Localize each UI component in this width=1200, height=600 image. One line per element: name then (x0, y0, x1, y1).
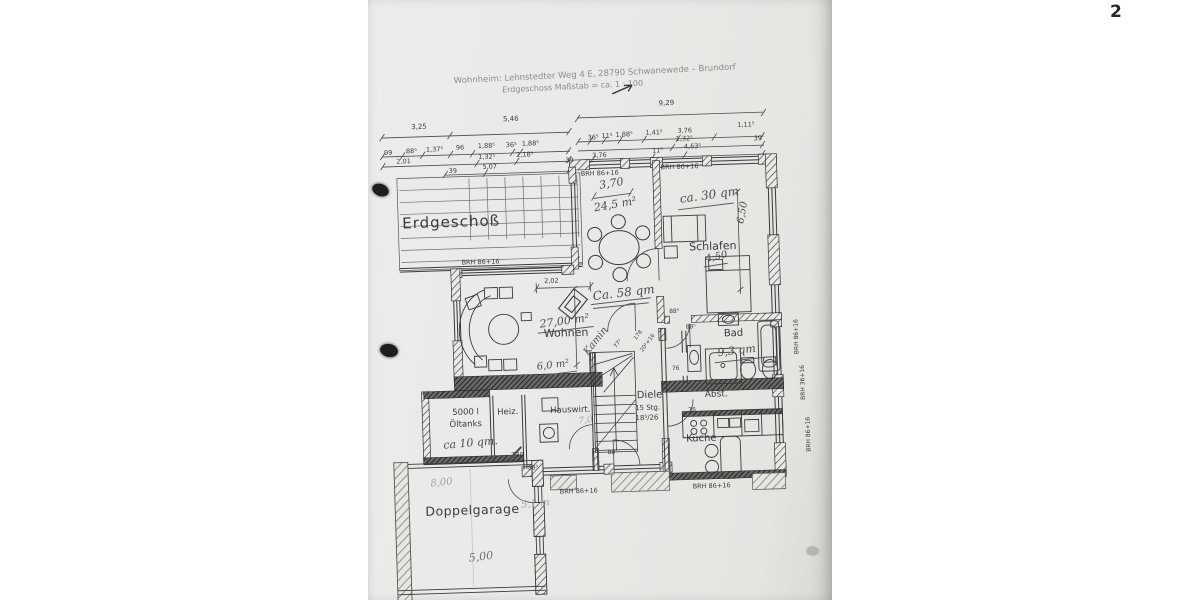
room-label-hauswirt: Hauswirt. (550, 406, 591, 416)
hand-hall-width: 7,0 (578, 416, 593, 427)
room-label-abst: Abst. (705, 390, 728, 400)
dim: 5,46 (503, 116, 519, 123)
dim: 11⁵ (602, 133, 613, 140)
sill-label: BRH 86+16 (560, 487, 598, 495)
utility-fixtures (539, 398, 559, 443)
sill-label: BRH 86+16 (793, 319, 800, 354)
dim: 76 (672, 366, 680, 372)
room-label-kueche: Küche (686, 434, 717, 445)
hand-garage-length: 5,00 (468, 550, 494, 564)
dim: 1,32⁵ (676, 135, 693, 142)
door-label-t30: T30 (511, 452, 523, 459)
sill-label: BRH 86+16 (693, 482, 731, 490)
sill-label: BRH 86+16 (806, 417, 813, 452)
dim: 4,63⁵ (684, 143, 701, 150)
dim: 99 (384, 150, 392, 157)
room-label-oeltank-2: Öltanks (449, 420, 482, 430)
photo-of-floor-plan: 2 Wohnheim: Lehnstedter Weg 4 E, 28790 S… (0, 0, 1200, 600)
room-label-garage: Doppelgarage (425, 503, 520, 518)
dim: 96 (456, 144, 464, 151)
dim: 88⁵ (406, 148, 417, 155)
scanned-floor-plan-sheet: Wohnheim: Lehnstedter Weg 4 E, 28790 Sch… (368, 0, 832, 600)
dim: 88⁵ (528, 465, 538, 471)
dim: 36⁵ (588, 134, 599, 141)
dim: 1,11⁵ (737, 121, 754, 128)
room-label-heiz: Heiz. (497, 408, 518, 417)
dining-table-and-chairs (587, 214, 651, 283)
page-number: 2 (1110, 2, 1122, 22)
dim: 1,37⁵ (426, 146, 443, 153)
dim: 1,41⁵ (645, 129, 662, 136)
dim: 9,29 (659, 100, 675, 107)
plan-title: Erdgeschoß (402, 213, 500, 231)
dim: 2,18⁵ (516, 151, 533, 158)
dim: 1,88⁵ (615, 131, 632, 138)
dim: 88⁵ (607, 450, 617, 456)
dim: 36⁵ (506, 142, 517, 149)
dim: 39 (565, 157, 573, 164)
scale-arrow (612, 85, 632, 94)
sill-label: BRH 86+16 (461, 258, 499, 266)
dim: 2,02 (544, 278, 559, 285)
dim: 39 (449, 168, 457, 175)
dim: 1,32⁵ (478, 154, 495, 161)
dim: 11⁵ (652, 147, 663, 154)
dim: 88⁵ (686, 324, 696, 330)
dim: 88⁵ (669, 309, 679, 315)
stairs (592, 351, 637, 452)
sill-label: BRH 36+16 (800, 365, 807, 400)
dim: 3,76 (677, 127, 692, 134)
dim: 3,76 (592, 152, 607, 159)
room-label-bad: Bad (724, 329, 744, 340)
dim: 1,88⁵ (478, 143, 495, 150)
dim: 5,07 (482, 163, 497, 170)
sill-label: BRH 86+16 (661, 163, 699, 171)
stair-count: 15 Stg. (635, 404, 660, 412)
floor-plan-drawing-area: Wohnheim: Lehnstedter Weg 4 E, 28790 Sch… (359, 0, 842, 600)
room-label-schlafen: Schlafen (689, 240, 737, 252)
dim: 3,25 (411, 124, 427, 131)
garage-walls (394, 458, 547, 600)
dim: 39 (754, 135, 762, 142)
dim: 76 (688, 407, 696, 413)
living-room-furniture (458, 286, 533, 371)
room-label-oeltank-1: 5000 l (452, 408, 479, 417)
stair-ratio: 18⁵/26 (635, 415, 658, 423)
room-label-diele: Diele (637, 390, 663, 401)
dim: 2,01 (396, 158, 411, 165)
dim: 1,88⁵ (522, 140, 539, 147)
